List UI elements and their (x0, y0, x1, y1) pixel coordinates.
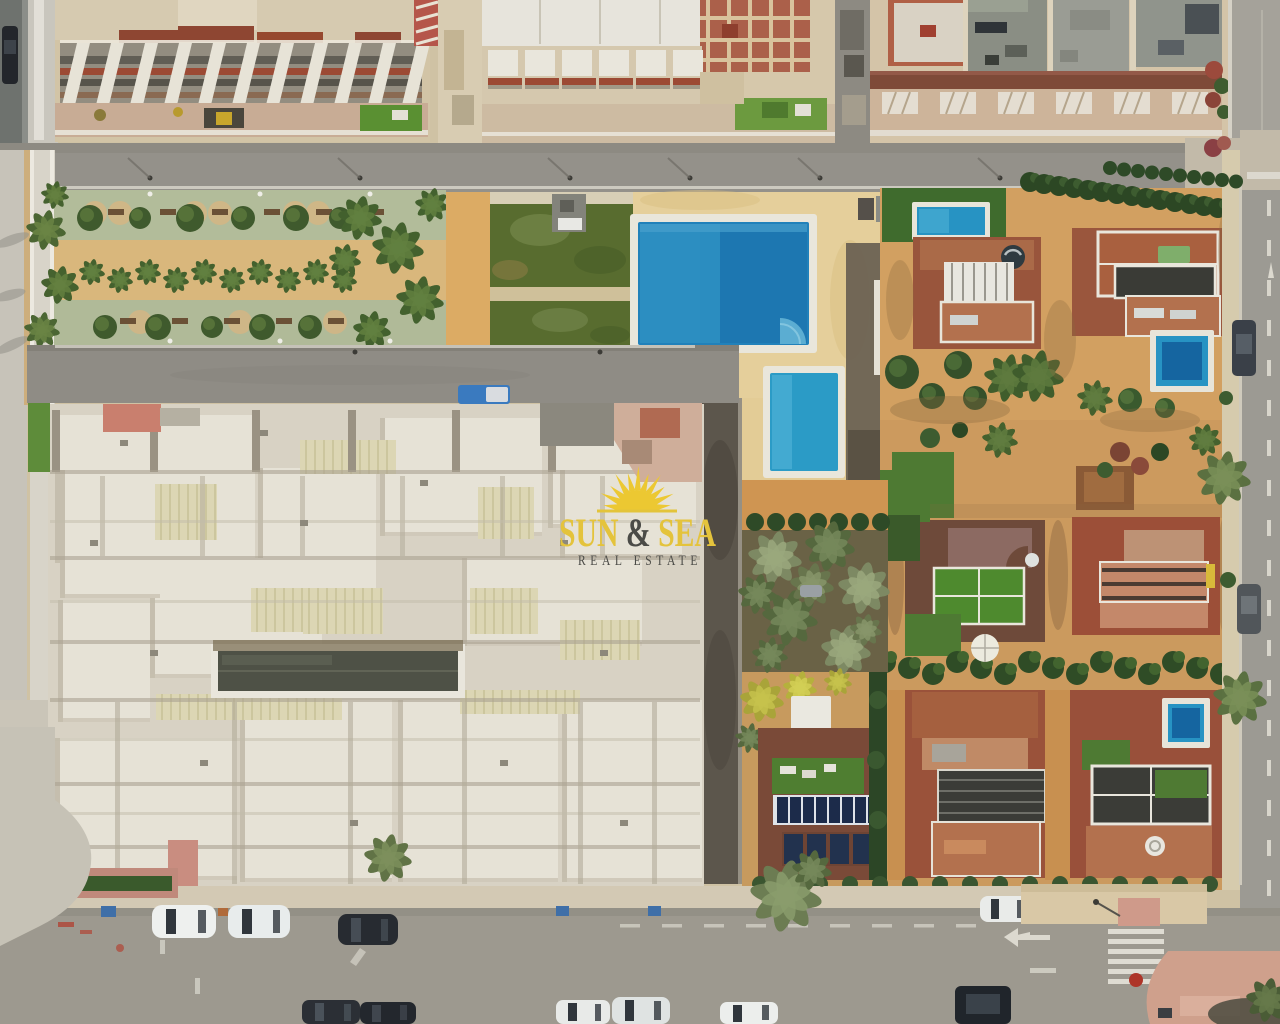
svg-text:SUN & SEA: SUN & SEA (559, 510, 716, 555)
svg-text:REAL ESTATE: REAL ESTATE (578, 553, 702, 569)
